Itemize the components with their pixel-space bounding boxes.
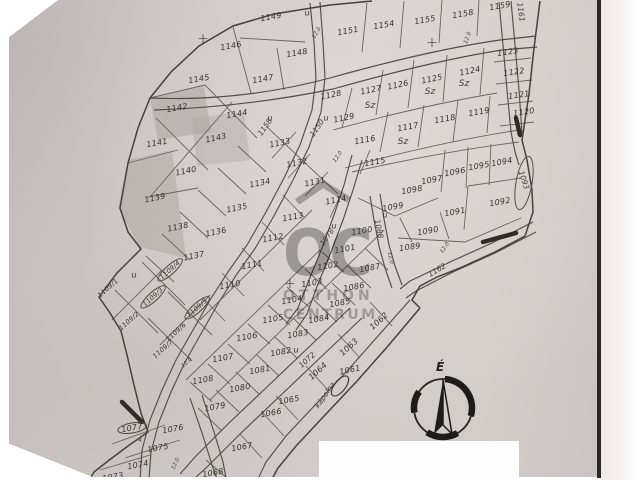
street-u-mark: u <box>331 222 336 231</box>
sz-handwritten-mark: Sz <box>425 87 435 97</box>
scan-edge-line <box>597 0 601 478</box>
survey-cross-mark: + <box>197 31 209 47</box>
watermark-line2: CENTRUM <box>283 307 423 323</box>
street-u-mark: u <box>304 9 309 18</box>
compass-north-label: É <box>436 360 444 374</box>
street-u-mark: u <box>293 346 298 355</box>
street-u-mark: u <box>131 271 136 280</box>
survey-cross-mark: + <box>284 276 296 292</box>
compass-rose-icon <box>403 368 484 449</box>
page-left-edge <box>0 0 9 480</box>
redaction-box <box>319 441 519 478</box>
sz-handwritten-mark: Sz <box>365 101 375 111</box>
street-u-mark: u <box>323 114 328 123</box>
watermark-letters: OC <box>283 222 412 286</box>
sz-handwritten-mark: Sz <box>398 137 408 147</box>
street-u-mark: u <box>267 114 272 123</box>
handwritten-sub-mark: 4 <box>138 438 142 444</box>
survey-cross-mark: + <box>426 35 438 51</box>
cadastral-map-scan: OC OTTHON CENTRUM 1149114611481151115411… <box>0 0 640 480</box>
street-u-mark: u <box>382 211 387 220</box>
sz-handwritten-mark: Sz <box>459 79 469 89</box>
page-corner-wedges <box>0 0 100 480</box>
